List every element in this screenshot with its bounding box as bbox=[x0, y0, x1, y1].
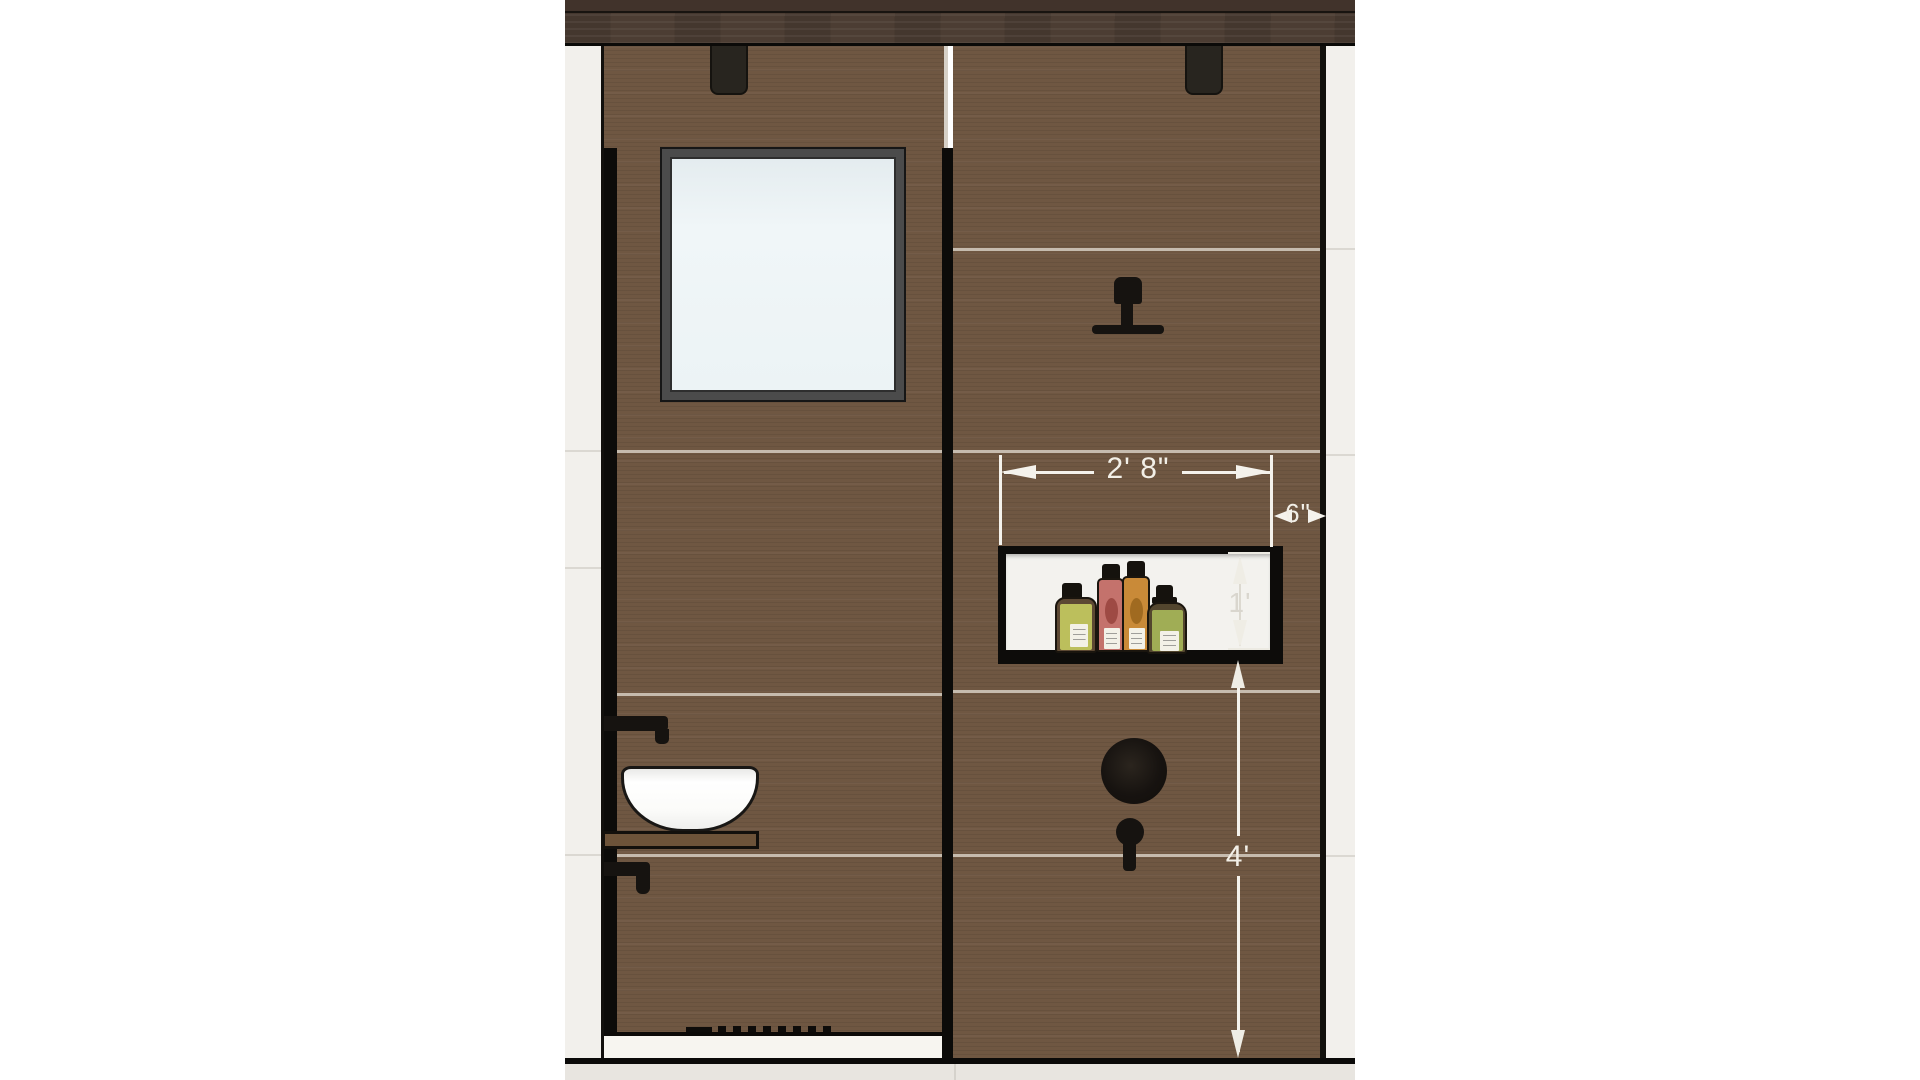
tile-joint bbox=[1326, 248, 1355, 250]
dim-floor-distance-label: 4' bbox=[1218, 840, 1258, 874]
arrowhead-up-icon bbox=[1231, 660, 1245, 688]
extension-tick bbox=[1228, 552, 1270, 554]
rose-bottle-sublabel bbox=[1104, 628, 1120, 649]
arrowhead-down-icon bbox=[1233, 620, 1247, 648]
tile-joint bbox=[565, 854, 601, 856]
tile-joint bbox=[604, 450, 944, 453]
ceiling-bracket-left bbox=[710, 46, 748, 95]
floor-seam bbox=[954, 1064, 956, 1080]
shower-curb bbox=[604, 1036, 944, 1058]
panel-gap-line bbox=[944, 46, 948, 150]
tile-joint bbox=[953, 854, 1320, 857]
wood-shelf bbox=[602, 831, 759, 849]
shower-arm-stem-icon bbox=[1121, 301, 1133, 327]
glass-panel-edge-center-lower bbox=[942, 148, 953, 1060]
tile-joint bbox=[1326, 855, 1355, 857]
dim-niche-width-label: 2' 8" bbox=[1088, 452, 1188, 486]
tile-joint bbox=[953, 248, 1320, 251]
side-tile-strip-right bbox=[1320, 46, 1355, 1058]
side-tile-strip-left bbox=[565, 46, 604, 1058]
glass-panel-edge-left bbox=[604, 148, 617, 1035]
green-bottle-sublabel bbox=[1160, 631, 1179, 651]
wood-beam-top-band bbox=[565, 0, 1355, 13]
arrowhead-right-icon bbox=[1236, 465, 1272, 479]
elevation-drawing-canvas: 2' 8" 6" 1' 4' bbox=[0, 0, 1920, 1080]
rose-bottle-cap-icon bbox=[1102, 564, 1120, 579]
tile-joint bbox=[565, 450, 601, 452]
wall-faucet-upper-spout-icon bbox=[655, 729, 669, 744]
window bbox=[660, 147, 906, 402]
tile-joint bbox=[604, 693, 944, 696]
amber-bottle-sublabel bbox=[1129, 628, 1145, 649]
diverter-knob-stem-icon bbox=[1123, 842, 1136, 871]
floor bbox=[565, 1064, 1355, 1080]
arrowhead-down-icon bbox=[1231, 1030, 1245, 1058]
shower-arm-elbow-icon bbox=[1114, 277, 1142, 304]
dimension-line bbox=[1237, 668, 1240, 836]
ceiling-bracket-right bbox=[1185, 46, 1223, 95]
extension-tick bbox=[1228, 648, 1270, 650]
window-glass bbox=[670, 157, 896, 392]
tile-joint bbox=[953, 690, 1320, 693]
dimension-line bbox=[1237, 876, 1240, 1052]
olive-bottle-sublabel bbox=[1070, 624, 1088, 647]
wall-faucet-lower-spout-icon bbox=[636, 872, 650, 894]
tile-joint bbox=[565, 567, 601, 569]
rain-shower-head-icon bbox=[1092, 325, 1164, 334]
dim-niche-offset-label: 6" bbox=[1278, 498, 1318, 529]
amber-bottle-cap-icon bbox=[1127, 561, 1145, 577]
dim-niche-height-label: 1' bbox=[1225, 587, 1255, 619]
amber-bottle-emblem bbox=[1130, 598, 1143, 624]
tile-joint bbox=[1326, 454, 1355, 456]
rose-bottle-emblem bbox=[1105, 598, 1118, 624]
arrowhead-left-icon bbox=[1000, 465, 1036, 479]
arrowhead-up-icon bbox=[1233, 556, 1247, 584]
tile-joint bbox=[604, 854, 944, 857]
shower-valve-icon bbox=[1101, 738, 1167, 804]
